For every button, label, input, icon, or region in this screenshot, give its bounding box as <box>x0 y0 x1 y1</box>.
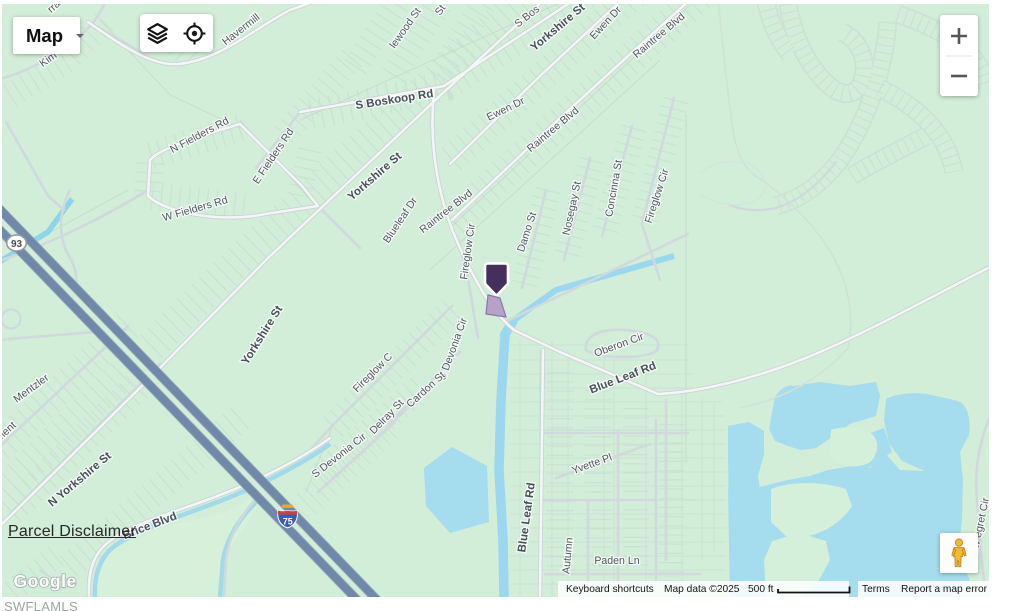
svg-text:93: 93 <box>11 239 23 250</box>
svg-text:75: 75 <box>283 517 293 527</box>
svg-text:Paden Ln: Paden Ln <box>594 555 639 567</box>
